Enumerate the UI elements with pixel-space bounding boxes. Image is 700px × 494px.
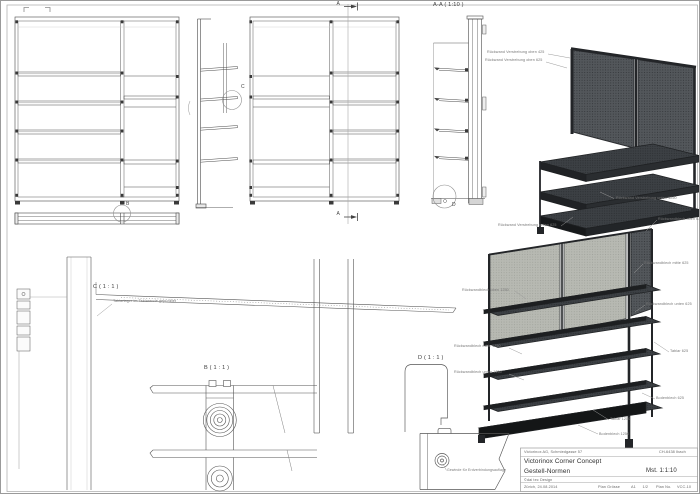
detail-d-title: D ( 1 : 1 ) <box>418 355 444 361</box>
title-block-page-value: 1/2 <box>643 485 649 489</box>
detail-b-marker: B <box>126 202 129 208</box>
callout-verstrebung-unten-1250: Rückwand Verstrebung unten 1250 <box>616 196 677 200</box>
callout-rueckwandblech-unten-1250: Rückwandblech unten 1250 <box>454 370 502 374</box>
title-block-copyright: ©dai tec Design <box>524 478 552 482</box>
section-aa-view <box>431 16 486 208</box>
drawing-linework <box>1 1 700 494</box>
detail-c-area <box>17 257 456 490</box>
title-block-place-date: Zürich, 24.08.2014 <box>524 485 557 489</box>
iso-view-top <box>537 49 699 237</box>
title-block-project: Victorinox Corner Concept <box>524 458 601 465</box>
front-elevation-view <box>15 17 179 205</box>
title-block-plan-no-value: VCC-10 <box>677 485 691 489</box>
section-marker-top: A <box>337 2 340 8</box>
callout-verstrebung-unten-625: Rückwand Verstrebung unten 625 <box>498 223 557 227</box>
title-block-scale: Mst. 1:1:10 <box>646 468 677 475</box>
callout-rueckwandblech-mitte-1250: Rückwandblech mitte 1250 <box>454 344 501 348</box>
callout-rueckwandblech-oben-625: Rückwandblech oben 625 <box>658 217 700 221</box>
title-block-subtitle: Gestell-Normen <box>524 468 570 475</box>
title-block-company: Victorinox AG, Schmiedgasse 57 <box>524 450 582 454</box>
title-block-plan-no-label: Plan No. <box>656 485 671 489</box>
callout-verstrebung-oben-425: Rückwand Verstrebung oben 425 <box>487 50 544 54</box>
middle-elevation-view <box>249 17 399 205</box>
callout-tablar-625: Tablar 625 <box>670 349 688 353</box>
detail-b-title: B ( 1 : 1 ) <box>204 365 229 371</box>
title-block-size-value: A1 <box>631 485 636 489</box>
plan-view <box>15 205 179 224</box>
detail-b-area <box>150 259 354 491</box>
callout-tablar-1250: Tablar 1250 <box>610 417 630 421</box>
note-tablar: Tablarlager im Tablarende gepunktet <box>113 299 176 303</box>
section-aa-title: A-A ( 1:10 ) <box>433 2 464 8</box>
detail-d-marker: D <box>452 203 456 209</box>
title-block-size-label: Plan Grösse <box>598 485 620 489</box>
callout-rueckwandblech-oben-1250: Rückwandblech oben 1250 <box>462 288 509 292</box>
detail-c-marker: C <box>241 85 245 91</box>
detail-c-title: C ( 1 : 1 ) <box>93 284 119 290</box>
callout-bodenblech-625: Bodenblech 625 <box>656 396 684 400</box>
callout-verstrebung-oben-625: Rückwand Verstrebung oben 625 <box>485 58 542 62</box>
title-block-city: CH-6438 Ibach <box>659 450 686 454</box>
section-marker-bottom: A <box>337 212 340 218</box>
callout-bodenblech-1250: Bodenblech 1250 <box>599 432 629 436</box>
side-profile-view <box>196 19 242 208</box>
note-gewinde: Gewinde für Erdverbindungsauflage <box>447 469 506 473</box>
section-line-a <box>344 3 358 225</box>
drawing-sheet: B C D A A A-A ( 1:10 ) C ( 1 : 1 ) B ( 1… <box>0 0 700 494</box>
callout-rueckwandblech-mitte-625: Rückwandblech mitte 625 <box>644 261 689 265</box>
iso-view-bottom <box>478 220 669 448</box>
callout-rueckwandblech-unten-625: Rückwandblech unten 625 <box>646 302 692 306</box>
